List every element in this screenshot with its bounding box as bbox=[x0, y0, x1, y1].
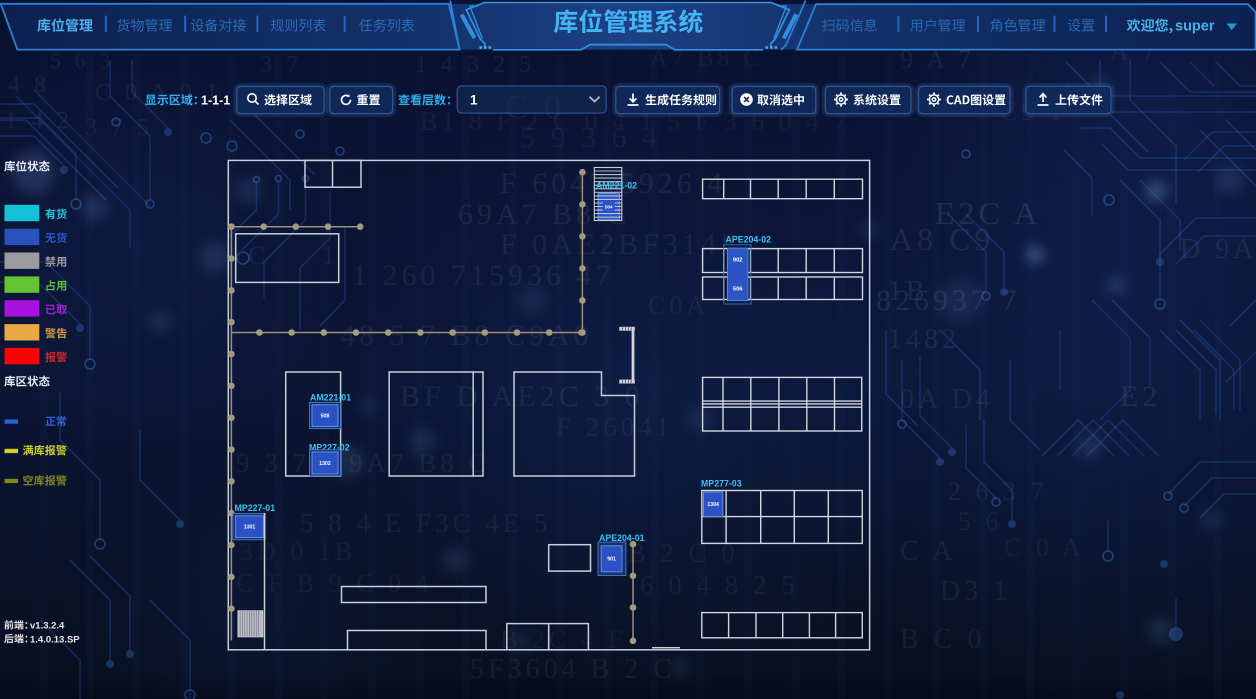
svg-text:1 260 715936 47: 1 260 715936 47 bbox=[352, 259, 615, 292]
svg-text:6 0 4 8 2 5: 6 0 4 8 2 5 bbox=[640, 570, 799, 600]
svg-text:C0A: C0A bbox=[648, 291, 709, 320]
svg-text:1B: 1B bbox=[888, 276, 929, 307]
svg-text:C 0 A: C 0 A bbox=[1004, 533, 1085, 562]
svg-text:1 4 2: 1 4 2 bbox=[5, 108, 73, 134]
svg-text:1-1-1: 1-1-1 bbox=[201, 93, 230, 107]
svg-text:B C 0: B C 0 bbox=[900, 624, 985, 655]
svg-text:MP227-01: MP227-01 bbox=[235, 503, 276, 513]
svg-text:D 9A: D 9A bbox=[1180, 234, 1256, 265]
svg-text:0A D4: 0A D4 bbox=[900, 384, 994, 415]
svg-text:C A: C A bbox=[900, 536, 956, 567]
svg-text:APE204-01: APE204-01 bbox=[599, 533, 645, 543]
svg-text:1 4 3 2 5: 1 4 3 2 5 bbox=[415, 52, 535, 78]
svg-text:F 0AE2BF314E: F 0AE2BF314E bbox=[500, 228, 742, 261]
svg-text:1: 1 bbox=[470, 93, 478, 108]
svg-text:1: 1 bbox=[322, 241, 339, 270]
svg-text:BF D AE2C 3 0: BF D AE2C 3 0 bbox=[400, 380, 644, 413]
svg-text:1302: 1302 bbox=[319, 461, 331, 467]
svg-text:MP277-03: MP277-03 bbox=[701, 479, 742, 489]
svg-text:2 6 3 7: 2 6 3 7 bbox=[948, 477, 1048, 506]
svg-text:F 26041: F 26041 bbox=[556, 412, 673, 442]
svg-text:9 3 7 4 9A7 B8 C: 9 3 7 4 9A7 B8 C bbox=[236, 448, 491, 478]
svg-text:5 6 3: 5 6 3 bbox=[50, 48, 114, 73]
svg-text:C F B 9 C 0 4: C F B 9 C 0 4 bbox=[236, 569, 433, 598]
svg-text:508: 508 bbox=[321, 414, 330, 420]
svg-text:AM221-02: AM221-02 bbox=[596, 180, 637, 190]
svg-text:1482: 1482 bbox=[888, 324, 960, 355]
svg-text:504: 504 bbox=[605, 204, 613, 209]
svg-text:5F3604 B 2 C: 5F3604 B 2 C bbox=[470, 654, 676, 685]
svg-text:super: super bbox=[1175, 19, 1215, 35]
svg-text:48 5 7 B8 C9A0: 48 5 7 B8 C9A0 bbox=[340, 319, 593, 352]
svg-text:5 9 3 6 4: 5 9 3 6 4 bbox=[520, 121, 661, 154]
svg-text:D3 1: D3 1 bbox=[940, 576, 1011, 607]
svg-text:3D 0 1B: 3D 0 1B bbox=[240, 537, 356, 566]
svg-text:3 7 5: 3 7 5 bbox=[85, 115, 153, 141]
svg-text:E2: E2 bbox=[1120, 380, 1161, 413]
svg-text:902: 902 bbox=[733, 257, 743, 263]
svg-text:4 8: 4 8 bbox=[8, 72, 50, 98]
svg-text:5 6: 5 6 bbox=[958, 507, 1003, 536]
svg-text:APE204-02: APE204-02 bbox=[726, 235, 772, 245]
svg-text:A8 C9: A8 C9 bbox=[890, 221, 994, 257]
svg-text:5 8 4 E F3C 4E 5: 5 8 4 E F3C 4E 5 bbox=[300, 508, 552, 538]
svg-text:AM221-01: AM221-01 bbox=[310, 393, 351, 403]
svg-text:1.4.0.13.SP: 1.4.0.13.SP bbox=[30, 634, 80, 645]
svg-text:v1.3.2.4: v1.3.2.4 bbox=[30, 621, 65, 632]
svg-text:901: 901 bbox=[607, 557, 616, 563]
svg-text:506: 506 bbox=[733, 287, 743, 293]
svg-text:C: C bbox=[248, 241, 269, 270]
svg-text:1304: 1304 bbox=[707, 502, 719, 508]
svg-text:3 7: 3 7 bbox=[260, 52, 302, 78]
svg-text:1301: 1301 bbox=[244, 525, 256, 531]
